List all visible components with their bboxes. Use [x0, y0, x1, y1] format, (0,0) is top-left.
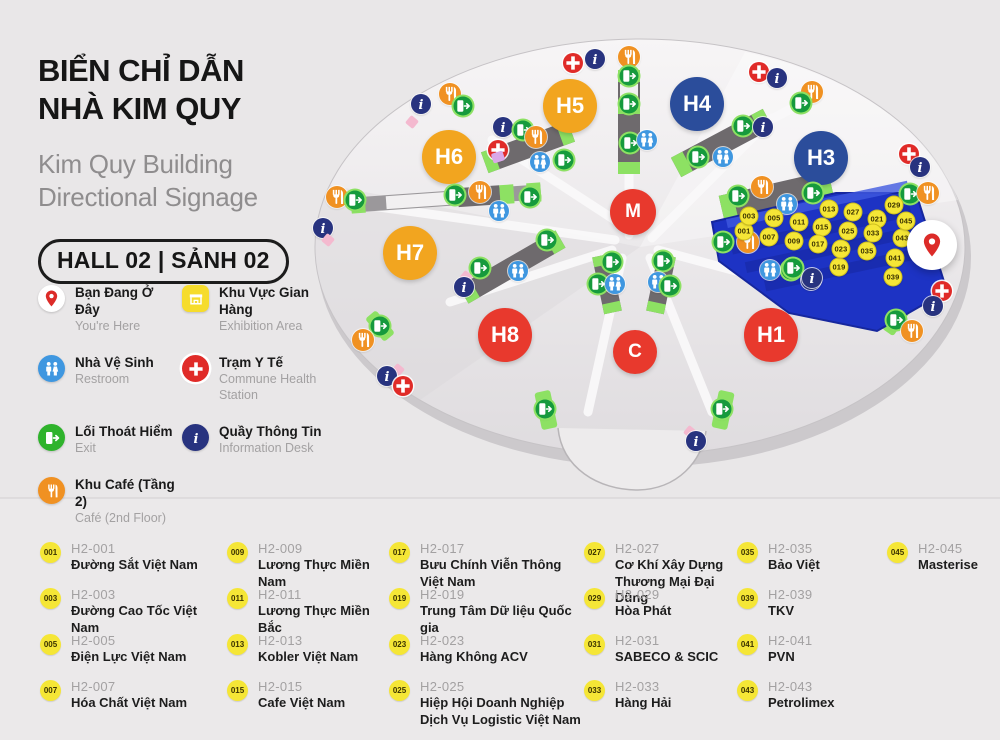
- booth-marker: 013: [821, 201, 838, 218]
- booth-marker: 025: [840, 223, 857, 240]
- information-icon: i: [411, 94, 431, 114]
- legend-title: Trạm Y Tế: [219, 354, 344, 371]
- exit-icon: [620, 67, 639, 86]
- booth-marker: 039: [885, 269, 902, 286]
- directory-entry: 039H2-039TKV: [737, 586, 879, 632]
- exit-icon: [784, 259, 803, 278]
- directory-entry: 015H2-015Cafe Việt Nam: [227, 678, 379, 724]
- booth-marker: 007: [761, 229, 778, 246]
- exit-icon: [714, 233, 733, 252]
- booth-name: SABECO & SCIC: [615, 649, 718, 666]
- exit-icon: [521, 188, 540, 207]
- cafe-icon: [901, 320, 923, 342]
- title-vi-line2: NHÀ KIM QUY: [38, 90, 289, 128]
- legend-title: Khu Vực Gian Hàng: [219, 284, 344, 318]
- directory-entry-text: H2-011Lương Thực Miền Bắc: [258, 586, 379, 636]
- directory-entry-text: H2-013Kobler Việt Nam: [258, 632, 358, 666]
- exit-icon: [713, 400, 732, 419]
- page-title-vi: BIỂN CHỈ DẪN NHÀ KIM QUY: [38, 52, 289, 128]
- booth-code: H2-007: [71, 678, 187, 695]
- hall-label-m: M: [610, 189, 656, 235]
- information-icon: i: [585, 49, 605, 69]
- information-icon: i: [910, 157, 930, 177]
- directory-entry-text: H2-045Masterise: [918, 540, 978, 574]
- booth-marker: 001: [736, 223, 753, 240]
- exhibition-icon: [182, 285, 209, 312]
- cafe-icon: [751, 176, 773, 198]
- exit-icon: [661, 277, 680, 296]
- directory-column: 009H2-009Lương Thực Miền Nam011H2-011Lươ…: [227, 540, 379, 724]
- directory-entry: 019H2-019Trung Tâm Dữ liệu Quốc gia: [389, 586, 583, 632]
- medical-cross-icon: [563, 53, 583, 73]
- booth-number-badge: 013: [227, 634, 248, 655]
- booth-number-badge: 043: [737, 680, 758, 701]
- information-icon: i: [493, 117, 513, 137]
- booth-number-badge: 039: [737, 588, 758, 609]
- legend-subtitle: Exit: [75, 440, 173, 456]
- directory-entry-text: H2-039TKV: [768, 586, 812, 620]
- booth-code: H2-029: [615, 586, 671, 603]
- booth-code: H2-003: [71, 586, 218, 603]
- directory-column: 001H2-001Đường Sắt Việt Nam003H2-003Đườn…: [40, 540, 218, 724]
- booth-code: H2-025: [420, 678, 583, 695]
- booth-number-badge: 017: [389, 542, 410, 563]
- legend-title: Bạn Đang Ở Đây: [75, 284, 176, 318]
- booth-number-badge: 023: [389, 634, 410, 655]
- booth-code: H2-045: [918, 540, 978, 557]
- information-icon: i: [802, 268, 822, 288]
- legend-title: Lối Thoát Hiểm: [75, 423, 173, 440]
- legend-title: Quầy Thông Tin: [219, 423, 322, 440]
- restroom-icon: [489, 201, 509, 221]
- booth-number-badge: 027: [584, 542, 605, 563]
- hall-label-h1: H1: [744, 308, 798, 362]
- information-icon: i: [923, 296, 943, 316]
- hall-label-h5: H5: [543, 79, 597, 133]
- title-en-line2: Directional Signage: [38, 181, 289, 214]
- booth-code: H2-031: [615, 632, 718, 649]
- directory-entry-text: H2-043Petrolimex: [768, 678, 834, 712]
- booth-number-badge: 005: [40, 634, 61, 655]
- svg-text:i: i: [501, 121, 506, 136]
- cafe-icon: [917, 182, 939, 204]
- directory-column: 035H2-035Bảo Việt039H2-039TKV041H2-041PV…: [737, 540, 879, 724]
- booth-marker: 003: [741, 208, 758, 225]
- svg-text:i: i: [810, 272, 815, 287]
- booth-code: H2-011: [258, 586, 379, 603]
- booth-name: Hiệp Hội Doanh Nghiệp Dịch Vụ Logistic V…: [420, 695, 583, 728]
- booth-name: Cafe Việt Nam: [258, 695, 345, 712]
- hall-label-h3: H3: [794, 131, 848, 185]
- legend-item-restroom: Nhà Vệ SinhRestroom: [38, 354, 176, 403]
- svg-text:i: i: [193, 432, 198, 447]
- directory-entry: 001H2-001Đường Sắt Việt Nam: [40, 540, 218, 586]
- booth-code: H2-035: [768, 540, 820, 557]
- legend-item-you-are-here: Bạn Đang Ở ĐâyYou're Here: [38, 284, 176, 334]
- booth-name: Bảo Việt: [768, 557, 820, 574]
- directory-entry: 027H2-027Cơ Khí Xây Dựng Thương Mại Đại …: [584, 540, 732, 586]
- directory-entry-text: H2-009Lương Thực Miền Nam: [258, 540, 379, 590]
- directory-entry-text: H2-023Hàng Không ACV: [420, 632, 528, 666]
- restroom-icon: [38, 355, 65, 382]
- booth-code: H2-017: [420, 540, 583, 557]
- svg-text:i: i: [385, 370, 390, 385]
- title-vi-line1: BIỂN CHỈ DẪN: [38, 52, 289, 90]
- booth-marker: 045: [898, 213, 915, 230]
- restroom-icon: [530, 152, 550, 172]
- directory-entry: 035H2-035Bảo Việt: [737, 540, 879, 586]
- booth-number-badge: 045: [887, 542, 908, 563]
- legend-item-information: iQuầy Thông TinInformation Desk: [182, 423, 344, 456]
- booth-code: H2-013: [258, 632, 358, 649]
- booth-number-badge: 007: [40, 680, 61, 701]
- directory-entry: 011H2-011Lương Thực Miền Bắc: [227, 586, 379, 632]
- svg-text:i: i: [775, 72, 780, 87]
- exit-icon: [538, 231, 557, 250]
- kim-quy-signage-poster: BIỂN CHỈ DẪN NHÀ KIM QUY Kim Quy Buildin…: [0, 0, 1000, 740]
- exit-icon: [471, 259, 490, 278]
- booth-code: H2-015: [258, 678, 345, 695]
- cafe-icon: [618, 46, 640, 68]
- directory-entry: 025H2-025Hiệp Hội Doanh Nghiệp Dịch Vụ L…: [389, 678, 583, 724]
- booth-marker: 011: [791, 214, 808, 231]
- booth-marker: 019: [831, 259, 848, 276]
- svg-text:i: i: [918, 161, 923, 176]
- directory-entry-text: H2-003Đường Cao Tốc Việt Nam: [71, 586, 218, 636]
- directory-entry: 005H2-005Điện Lực Việt Nam: [40, 632, 218, 678]
- booth-marker: 009: [786, 233, 803, 250]
- legend-item-exit: Lối Thoát HiểmExit: [38, 423, 176, 456]
- directory-entry-text: H2-031SABECO & SCIC: [615, 632, 718, 666]
- booth-name: Hòa Phát: [615, 603, 671, 620]
- legend-item-exhibition: Khu Vực Gian HàngExhibition Area: [182, 284, 344, 334]
- booth-number-badge: 035: [737, 542, 758, 563]
- page-title-en: Kim Quy Building Directional Signage: [38, 148, 289, 214]
- legend-title: Khu Café (Tầng 2): [75, 476, 176, 510]
- information-icon: i: [182, 424, 209, 451]
- svg-text:i: i: [761, 121, 766, 136]
- directory-entry-text: H2-017Bưu Chính Viễn Thông Việt Nam: [420, 540, 583, 590]
- legend-title: Nhà Vệ Sinh: [75, 354, 154, 371]
- booth-number-badge: 025: [389, 680, 410, 701]
- booth-number-badge: 019: [389, 588, 410, 609]
- booth-code: H2-023: [420, 632, 528, 649]
- directory-entry: 031H2-031SABECO & SCIC: [584, 632, 732, 678]
- booth-code: H2-001: [71, 540, 198, 557]
- svg-text:i: i: [419, 98, 424, 113]
- booth-number-badge: 011: [227, 588, 248, 609]
- cafe-icon: [469, 181, 491, 203]
- cafe-icon: [352, 329, 374, 351]
- restroom-icon: [508, 261, 528, 281]
- directory-entry-text: H2-035Bảo Việt: [768, 540, 820, 574]
- restroom-icon: [637, 130, 657, 150]
- legend-subtitle: Exhibition Area: [219, 318, 344, 334]
- exit-icon: [792, 94, 811, 113]
- information-icon: i: [753, 117, 773, 137]
- legend-item-medical: Trạm Y TếCommune Health Station: [182, 354, 344, 403]
- booth-marker: 005: [766, 210, 783, 227]
- booth-name: Điện Lực Việt Nam: [71, 649, 186, 666]
- booth-name: Hàng Không ACV: [420, 649, 528, 666]
- booth-marker: 033: [865, 225, 882, 242]
- exit-icon: [689, 148, 708, 167]
- medical-cross-icon: [393, 376, 413, 396]
- directory-entry-text: H2-005Điện Lực Việt Nam: [71, 632, 186, 666]
- booth-marker: 035: [859, 243, 876, 260]
- booth-code: H2-005: [71, 632, 186, 649]
- booth-number-badge: 001: [40, 542, 61, 563]
- booth-number-badge: 033: [584, 680, 605, 701]
- directory-column: 045H2-045Masterise: [887, 540, 995, 586]
- booth-number-badge: 041: [737, 634, 758, 655]
- medical-icon: [182, 355, 209, 382]
- booth-number-badge: 031: [584, 634, 605, 655]
- exit-icon: [603, 253, 622, 272]
- booth-name: Kobler Việt Nam: [258, 649, 358, 666]
- booth-name: Hóa Chất Việt Nam: [71, 695, 187, 712]
- legend-subtitle: Café (2nd Floor): [75, 510, 176, 526]
- booth-marker: 041: [887, 250, 904, 267]
- hall-badge: HALL 02 | SẢNH 02: [38, 239, 289, 284]
- cafe-icon: [525, 126, 547, 148]
- legend-text: Khu Café (Tầng 2)Café (2nd Floor): [75, 476, 176, 526]
- directory-entry: 017H2-017Bưu Chính Viễn Thông Việt Nam: [389, 540, 583, 586]
- booth-name: Đường Sắt Việt Nam: [71, 557, 198, 574]
- directory-entry: 009H2-009Lương Thực Miền Nam: [227, 540, 379, 586]
- booth-name: TKV: [768, 603, 812, 620]
- hall-label-c: C: [613, 330, 657, 374]
- decor-wedge: [491, 150, 506, 163]
- svg-text:i: i: [593, 53, 598, 68]
- booth-code: H2-033: [615, 678, 671, 695]
- legend-text: Bạn Đang Ở ĐâyYou're Here: [75, 284, 176, 334]
- directory-entry-text: H2-033Hàng Hải: [615, 678, 671, 712]
- directory-entry: 023H2-023Hàng Không ACV: [389, 632, 583, 678]
- directory-entry-text: H2-015Cafe Việt Nam: [258, 678, 345, 712]
- svg-text:i: i: [462, 281, 467, 296]
- directory-entry-text: H2-025Hiệp Hội Doanh Nghiệp Dịch Vụ Logi…: [420, 678, 583, 728]
- exit-icon: [620, 95, 639, 114]
- directory-entry: 013H2-013Kobler Việt Nam: [227, 632, 379, 678]
- booth-marker: 029: [886, 197, 903, 214]
- booth-name: Masterise: [918, 557, 978, 574]
- directory-column: 027H2-027Cơ Khí Xây Dựng Thương Mại Đại …: [584, 540, 732, 724]
- directory-entry: 033H2-033Hàng Hải: [584, 678, 732, 724]
- booth-code: H2-019: [420, 586, 583, 603]
- directory-entry-text: H2-041PVN: [768, 632, 812, 666]
- directory-entry: 003H2-003Đường Cao Tốc Việt Nam: [40, 586, 218, 632]
- information-icon: i: [686, 431, 706, 451]
- legend-text: Nhà Vệ SinhRestroom: [75, 354, 154, 387]
- booth-name: Hàng Hải: [615, 695, 671, 712]
- hall-label-h4: H4: [670, 77, 724, 131]
- booth-code: H2-009: [258, 540, 379, 557]
- header: BIỂN CHỈ DẪN NHÀ KIM QUY Kim Quy Buildin…: [38, 52, 289, 284]
- hall-label-h8: H8: [478, 308, 532, 362]
- booth-marker: 017: [810, 236, 827, 253]
- directory-entry: 041H2-041PVN: [737, 632, 879, 678]
- booth-number-badge: 015: [227, 680, 248, 701]
- exit-icon: [446, 186, 465, 205]
- booth-number-badge: 029: [584, 588, 605, 609]
- exit-icon: [454, 97, 473, 116]
- restroom-icon: [760, 260, 780, 280]
- exit-icon: [729, 187, 748, 206]
- exit-icon: [654, 252, 673, 271]
- legend: Bạn Đang Ở ĐâyYou're HereKhu Vực Gian Hà…: [38, 284, 344, 526]
- you-are-here-pin: [907, 220, 957, 270]
- cafe-icon: [38, 477, 65, 504]
- legend-item-cafe: Khu Café (Tầng 2)Café (2nd Floor): [38, 476, 176, 526]
- hall-label-h6: H6: [422, 130, 476, 184]
- directory-entry: 007H2-007Hóa Chất Việt Nam: [40, 678, 218, 724]
- exit-icon: [734, 117, 753, 136]
- medical-cross-icon: [749, 62, 769, 82]
- hall-label-h7: H7: [383, 226, 437, 280]
- information-icon: i: [767, 68, 787, 88]
- booth-marker: 015: [814, 219, 831, 236]
- you-are-here-icon: [38, 285, 65, 312]
- exit-icon: [346, 191, 365, 210]
- booth-marker: 027: [845, 204, 862, 221]
- exit-icon: [555, 151, 574, 170]
- title-en-line1: Kim Quy Building: [38, 148, 289, 181]
- legend-subtitle: Restroom: [75, 371, 154, 387]
- legend-subtitle: Information Desk: [219, 440, 322, 456]
- svg-text:i: i: [931, 300, 936, 315]
- exit-icon: [804, 184, 823, 203]
- booth-code: H2-039: [768, 586, 812, 603]
- booth-directory: 001H2-001Đường Sắt Việt Nam003H2-003Đườn…: [0, 540, 1000, 740]
- directory-entry-text: H2-001Đường Sắt Việt Nam: [71, 540, 198, 574]
- legend-text: Lối Thoát HiểmExit: [75, 423, 173, 456]
- booth-name: PVN: [768, 649, 812, 666]
- directory-column: 017H2-017Bưu Chính Viễn Thông Việt Nam01…: [389, 540, 583, 724]
- booth-code: H2-043: [768, 678, 834, 695]
- booth-number-badge: 009: [227, 542, 248, 563]
- directory-entry: 043H2-043Petrolimex: [737, 678, 879, 724]
- legend-subtitle: Commune Health Station: [219, 371, 344, 403]
- restroom-icon: [605, 274, 625, 294]
- decor-wedge: [405, 115, 419, 129]
- booth-code: H2-041: [768, 632, 812, 649]
- exit-icon: [38, 424, 65, 451]
- legend-text: Khu Vực Gian HàngExhibition Area: [219, 284, 344, 334]
- directory-entry-text: H2-029Hòa Phát: [615, 586, 671, 620]
- legend-text: Trạm Y TếCommune Health Station: [219, 354, 344, 403]
- booth-name: Petrolimex: [768, 695, 834, 712]
- exit-icon: [536, 400, 555, 419]
- legend-text: Quầy Thông TinInformation Desk: [219, 423, 322, 456]
- booth-number-badge: 003: [40, 588, 61, 609]
- booth-code: H2-027: [615, 540, 732, 557]
- directory-entry-text: H2-007Hóa Chất Việt Nam: [71, 678, 187, 712]
- booth-marker: 023: [833, 241, 850, 258]
- directory-entry: 045H2-045Masterise: [887, 540, 995, 586]
- directory-entry-text: H2-019Trung Tâm Dữ liệu Quốc gia: [420, 586, 583, 636]
- svg-text:i: i: [694, 435, 699, 450]
- restroom-icon: [713, 147, 733, 167]
- legend-subtitle: You're Here: [75, 318, 176, 334]
- information-icon: i: [454, 277, 474, 297]
